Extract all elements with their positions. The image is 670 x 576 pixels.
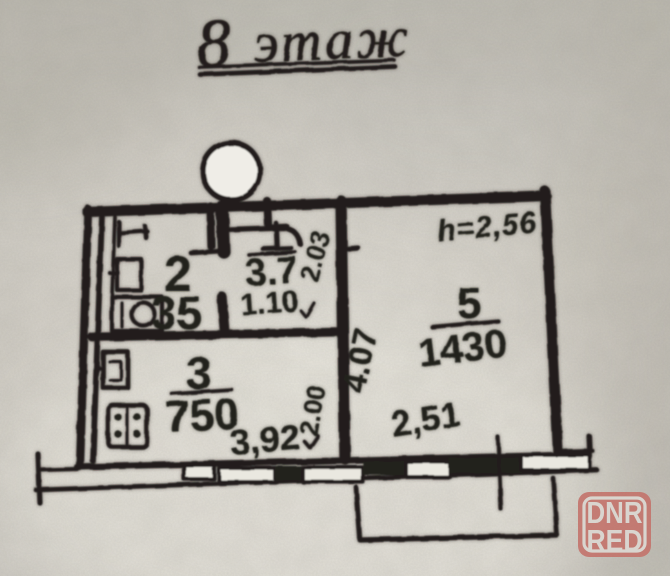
svg-text:5: 5 bbox=[457, 279, 481, 328]
svg-text:1.10: 1.10 bbox=[239, 285, 300, 322]
svg-text:8: 8 bbox=[195, 4, 232, 81]
svg-text:35: 35 bbox=[151, 287, 202, 339]
svg-text:RED: RED bbox=[587, 523, 643, 558]
svg-text:3,92: 3,92 bbox=[228, 416, 301, 463]
